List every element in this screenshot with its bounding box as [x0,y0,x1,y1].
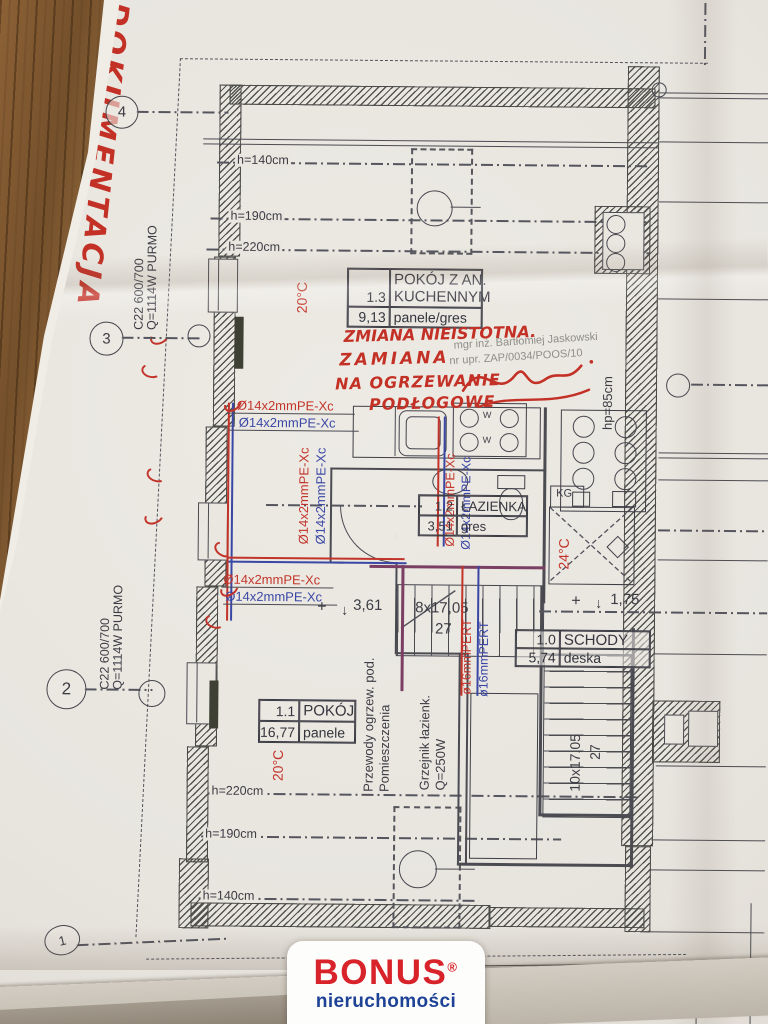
appliance-ring [615,416,637,438]
axis-line [691,384,768,386]
leader-line [229,430,359,432]
wall-left-1 [218,85,242,257]
height-label: h=190cm [203,827,259,840]
axis-line [136,111,228,114]
red-pen-mark [140,362,163,380]
room-label-1-3: 1.3 POKÓJ Z AN.KUCHENNYM 9,13 panele/gre… [347,268,484,329]
axis-line [76,938,226,946]
temp-label: 20°C [270,750,286,781]
window-1 [208,258,238,312]
pipe-purple [400,565,404,691]
room-id: 1.0 [516,630,560,648]
note-towel-radiator: Grzejnik łazienk. [418,695,432,790]
appliance-small [612,491,636,507]
radiator-upper [234,317,243,369]
stairs-upper-width: 27 [435,621,452,637]
plan-line [476,963,764,967]
room-area: 9,13 [348,307,390,327]
level-value: 1,75 [610,592,639,608]
kitchen-sink-basin [406,416,441,449]
room-label-1-0: 1.0 SCHODY 5,74 deska [515,629,651,668]
knee-wall-line [203,138,659,148]
hatch-mark [648,972,696,985]
room-name: SCHODY [560,631,650,650]
door-arc [340,506,397,563]
leader-line [223,604,337,606]
plan-line [658,298,768,300]
wall-top [230,85,656,109]
plan-line [135,58,181,937]
appliance-ring [572,442,594,464]
room-id: 1.1 [259,700,299,721]
height-label: h=220cm [210,784,266,797]
level-arrow: ↓ [341,603,348,618]
height-label: h=140cm [235,154,291,167]
pipe-label: ø16mmPERT [477,621,491,697]
burner [500,433,519,452]
room-finish: deska [560,649,650,668]
plan-line [656,765,766,767]
pipe-label: Ø14x2mmPE-Xc [225,590,322,604]
temp-label: 20°C [294,282,310,313]
level-arrow: ↓ [595,596,602,611]
kg-label: KG [556,489,572,501]
stairs-lower-run: 10x17,05 [568,734,583,792]
plan-line [655,653,767,655]
note-heating-pipes: Przewody ogrzew. pod. [362,657,377,792]
registered-mark: ® [447,959,458,974]
stairs-lower-flight [542,653,631,818]
plan-line [658,559,768,561]
pipe-label: Ø14x2mmPE-Xc [297,447,311,544]
room-finish: panele [299,721,355,742]
chimney-opening [688,711,718,747]
agency-logo-brand: BONUS® [314,955,459,990]
room-id: 1.2 [419,495,457,515]
wall-left-5 [186,746,209,862]
wc-tank [497,475,525,489]
red-pen-mark [145,465,168,485]
connector-circle [666,373,690,397]
plan-line [651,839,765,841]
radiator-lower [209,680,218,728]
note-rooms: Pomieszczenia [378,705,392,793]
note-radiator-power: Q=250W [434,739,448,791]
room-area: 16,77 [259,721,299,742]
flue [606,215,625,234]
pipe-blue [229,561,407,565]
pipe-label: Ø14x2mmPE-Xc [237,399,334,413]
agency-logo-subtitle: nieruchomości [316,991,456,1013]
plan-line [658,479,768,481]
room-name: ŁAZIENKA [457,496,527,517]
radiator-spec-lower: C22 600/700 Q=1114W PURMO [98,585,125,690]
height-label: h=190cm [229,210,285,223]
room-name: POKÓJ [299,700,355,721]
plan-line [180,58,708,64]
room-label-1-2: 1.2 ŁAZIENKA 3,51 gres [418,494,528,537]
room-finish: gres [457,516,527,537]
flue [606,234,625,253]
radiator-spec-upper: C22 600/700 Q=1114W PURMO [133,225,160,330]
grid-bubble-1: 1 [41,921,83,959]
grid-bubble-3: 3 [89,321,123,355]
brand-text: BONUS [314,953,448,992]
handwritten-note-line: ZAMIANA [339,348,450,371]
red-pen-mark [142,506,166,527]
flue [606,253,625,272]
plan-line [660,92,768,99]
height-label: h=220cm [226,241,282,254]
grid-bubble-2: 2 [46,669,86,709]
height-label: h=140cm [201,889,257,902]
room-area: 5,74 [516,648,560,666]
room-id: 1.3 [348,269,390,307]
plan-line [696,999,764,1001]
plan-line [696,961,698,1024]
stair-cut-line [399,588,460,649]
plan-line [649,869,765,871]
room-area: 3,51 [419,515,457,535]
stairs-lower-width: 27 [588,744,603,760]
level-value: 3,61 [353,598,382,614]
plan-line [658,452,768,459]
stair-wall [457,863,633,868]
agency-logo-card: BONUS® nieruchomości [287,941,485,1024]
plan-line [659,141,768,143]
paper-sheet: DOKUMENTACJA [0,0,768,1024]
room-name: POKÓJ Z AN.KUCHENNYM [390,269,482,308]
temp-label: 24°C [556,538,572,569]
plan-line [704,3,706,67]
pipe-label: ø16mmPERT [460,619,474,695]
appliance-ring [614,468,636,490]
plan-line [451,207,481,209]
plan-line [659,201,768,203]
hatch-mark [494,981,534,994]
connector-circle [187,324,210,347]
connector-circle [138,680,165,707]
radiator-power: Q=1114W PURMO [145,225,160,330]
wall-bottom-2 [488,907,644,928]
signature [449,349,600,420]
plan-line [658,529,768,532]
radiator-power: Q=1114W PURMO [110,585,125,690]
pipe-label: Ø14x2mmPE-Xc [314,448,328,545]
pipe-red [227,557,405,561]
bathroom-wall [330,468,333,564]
room-label-1-1: 1.1 POKÓJ 16,77 panele [258,699,356,744]
bathroom-wall [542,407,546,603]
plan-line [644,931,764,933]
level-plus: + [571,594,580,611]
w-mark: W [483,436,492,445]
appliance-ring [614,442,636,464]
burner [460,433,479,452]
roof-window-top-handle [416,190,452,226]
roof-window-bottom-handle [399,850,437,888]
chimney-opening [664,714,684,744]
grid-bubble-4: 4 [105,96,138,129]
landing-closet [469,693,538,860]
parapet-height-label: hp=85cm [601,376,615,430]
floorplan-photo: DOKUMENTACJA [0,0,768,1024]
plan: h=140cm h=190cm h=220cm h=220cm h=190cm … [0,0,768,1024]
pipe-label: Ø14x2mmPE-Xc [239,416,336,430]
